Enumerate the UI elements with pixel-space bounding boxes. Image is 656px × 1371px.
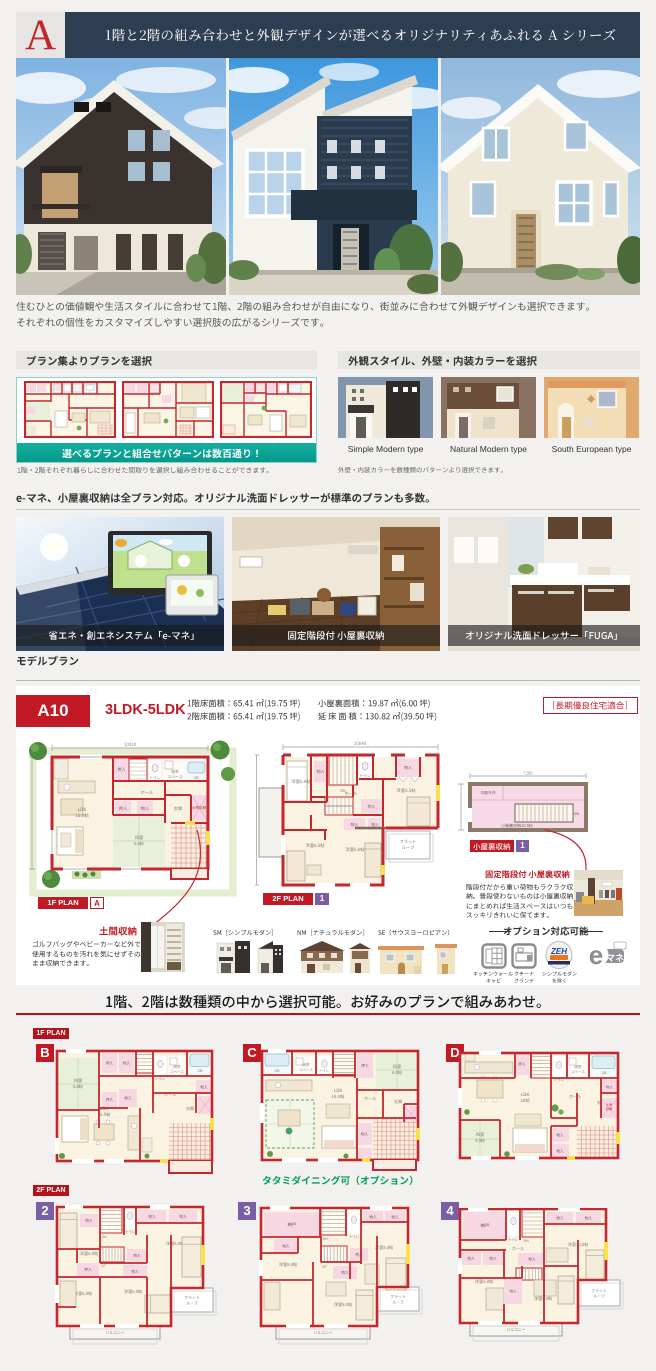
svg-text:ZEH: ZEH <box>550 947 567 956</box>
svg-text:e: e <box>589 941 603 970</box>
